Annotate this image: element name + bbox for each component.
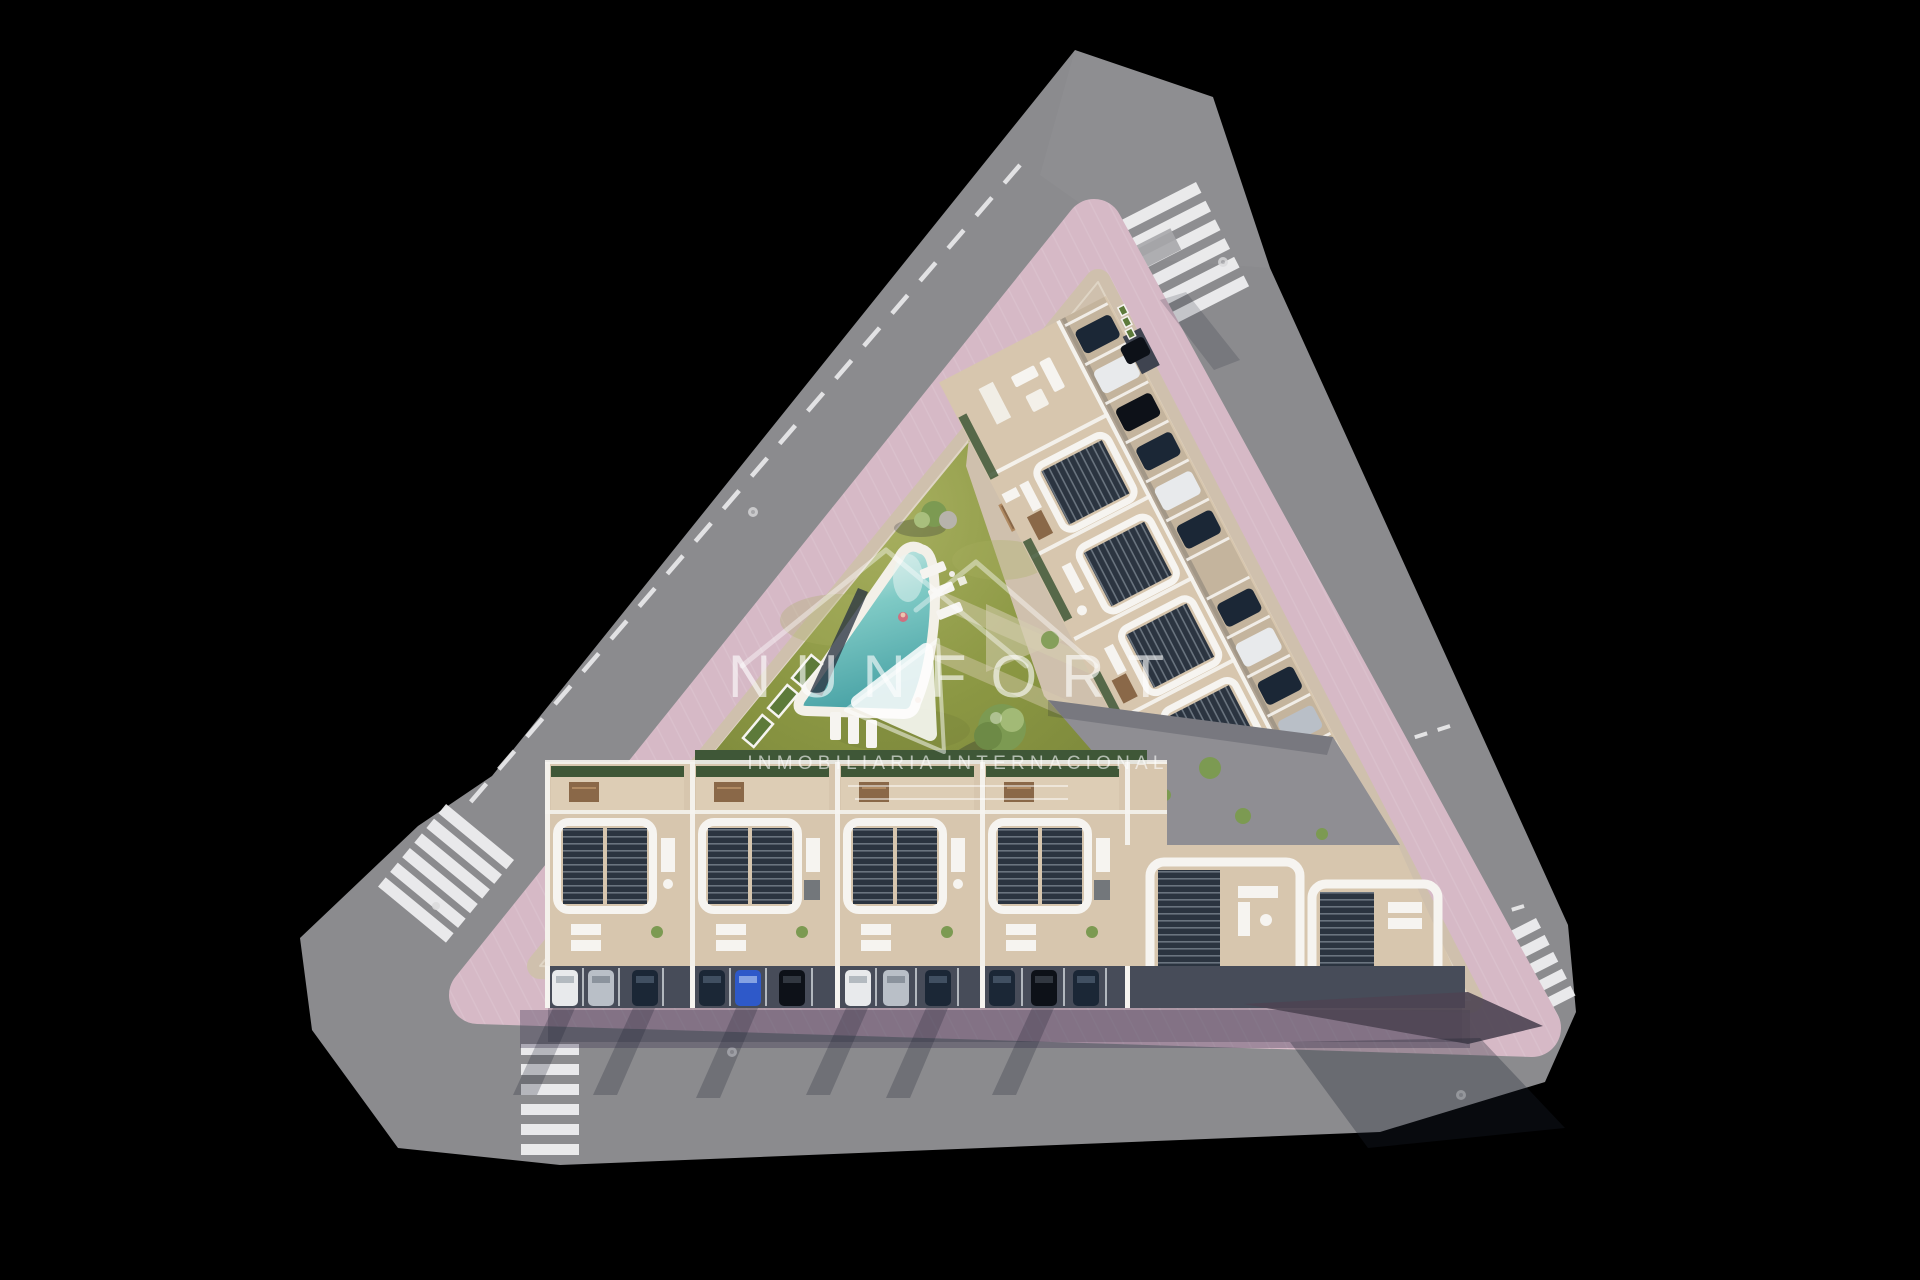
picnic-table [569,782,599,802]
parked-car [779,970,805,1006]
terrace-plant [796,926,808,938]
picnic-table [714,782,744,802]
parked-car [883,970,909,1006]
brand-name: NUNFORT [728,643,1188,710]
terrace-plant [1086,926,1098,938]
site-plan-svg: NUNFORT INMOBILIARIA INTERNACIONAL [0,0,1920,1280]
courtyard-tree [1199,757,1221,779]
rock [939,511,957,529]
parked-car [735,970,761,1006]
parked-car [989,970,1015,1006]
bush [1316,828,1328,840]
ac-unit [1094,880,1110,900]
ac-unit [804,880,820,900]
unit-garden [551,766,684,810]
aerial-site-plan: NUNFORT INMOBILIARIA INTERNACIONAL [0,0,1920,1280]
parked-car [1073,970,1099,1006]
terrace-plant [941,926,953,938]
brand-tagline: INMOBILIARIA INTERNACIONAL [747,753,1168,774]
parked-car [552,970,578,1006]
person [949,571,955,577]
parked-car [632,970,658,1006]
parked-car [588,970,614,1006]
parked-car [1031,970,1057,1006]
bush [1235,808,1251,824]
parked-car [699,970,725,1006]
terrace-plant [651,926,663,938]
parked-car [845,970,871,1006]
parked-car [925,970,951,1006]
